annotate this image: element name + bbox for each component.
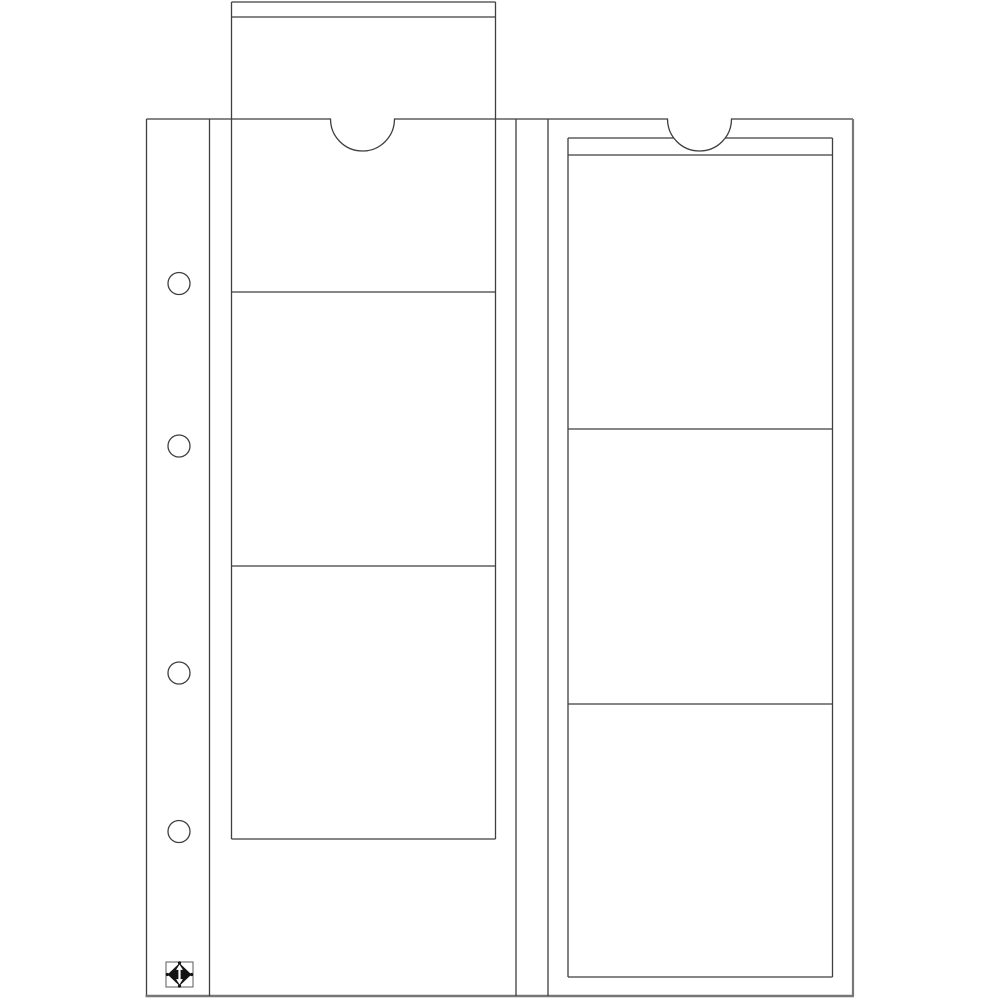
line-art-canvas [0,0,1000,1000]
sheet-outline [146,119,855,996]
logo-corner-dot-3 [178,985,181,988]
binder-hole-4 [168,821,190,843]
binder-holes [168,273,190,843]
logo-corner-dot-4 [166,973,169,976]
coin-sheet-product-illustration [0,0,1000,1000]
binder-hole-1 [168,273,190,295]
binder-hole-3 [168,662,190,684]
leuchtturm-logo [166,961,193,987]
sheet-top-edge-with-notches [147,119,854,151]
logo-corner-dot-2 [190,973,193,976]
pocket-weld-rails [210,119,549,996]
right-insert-card [568,138,833,977]
binder-hole-2 [168,435,190,457]
left-insert-card [232,2,496,839]
logo-corner-dot-1 [178,961,181,964]
